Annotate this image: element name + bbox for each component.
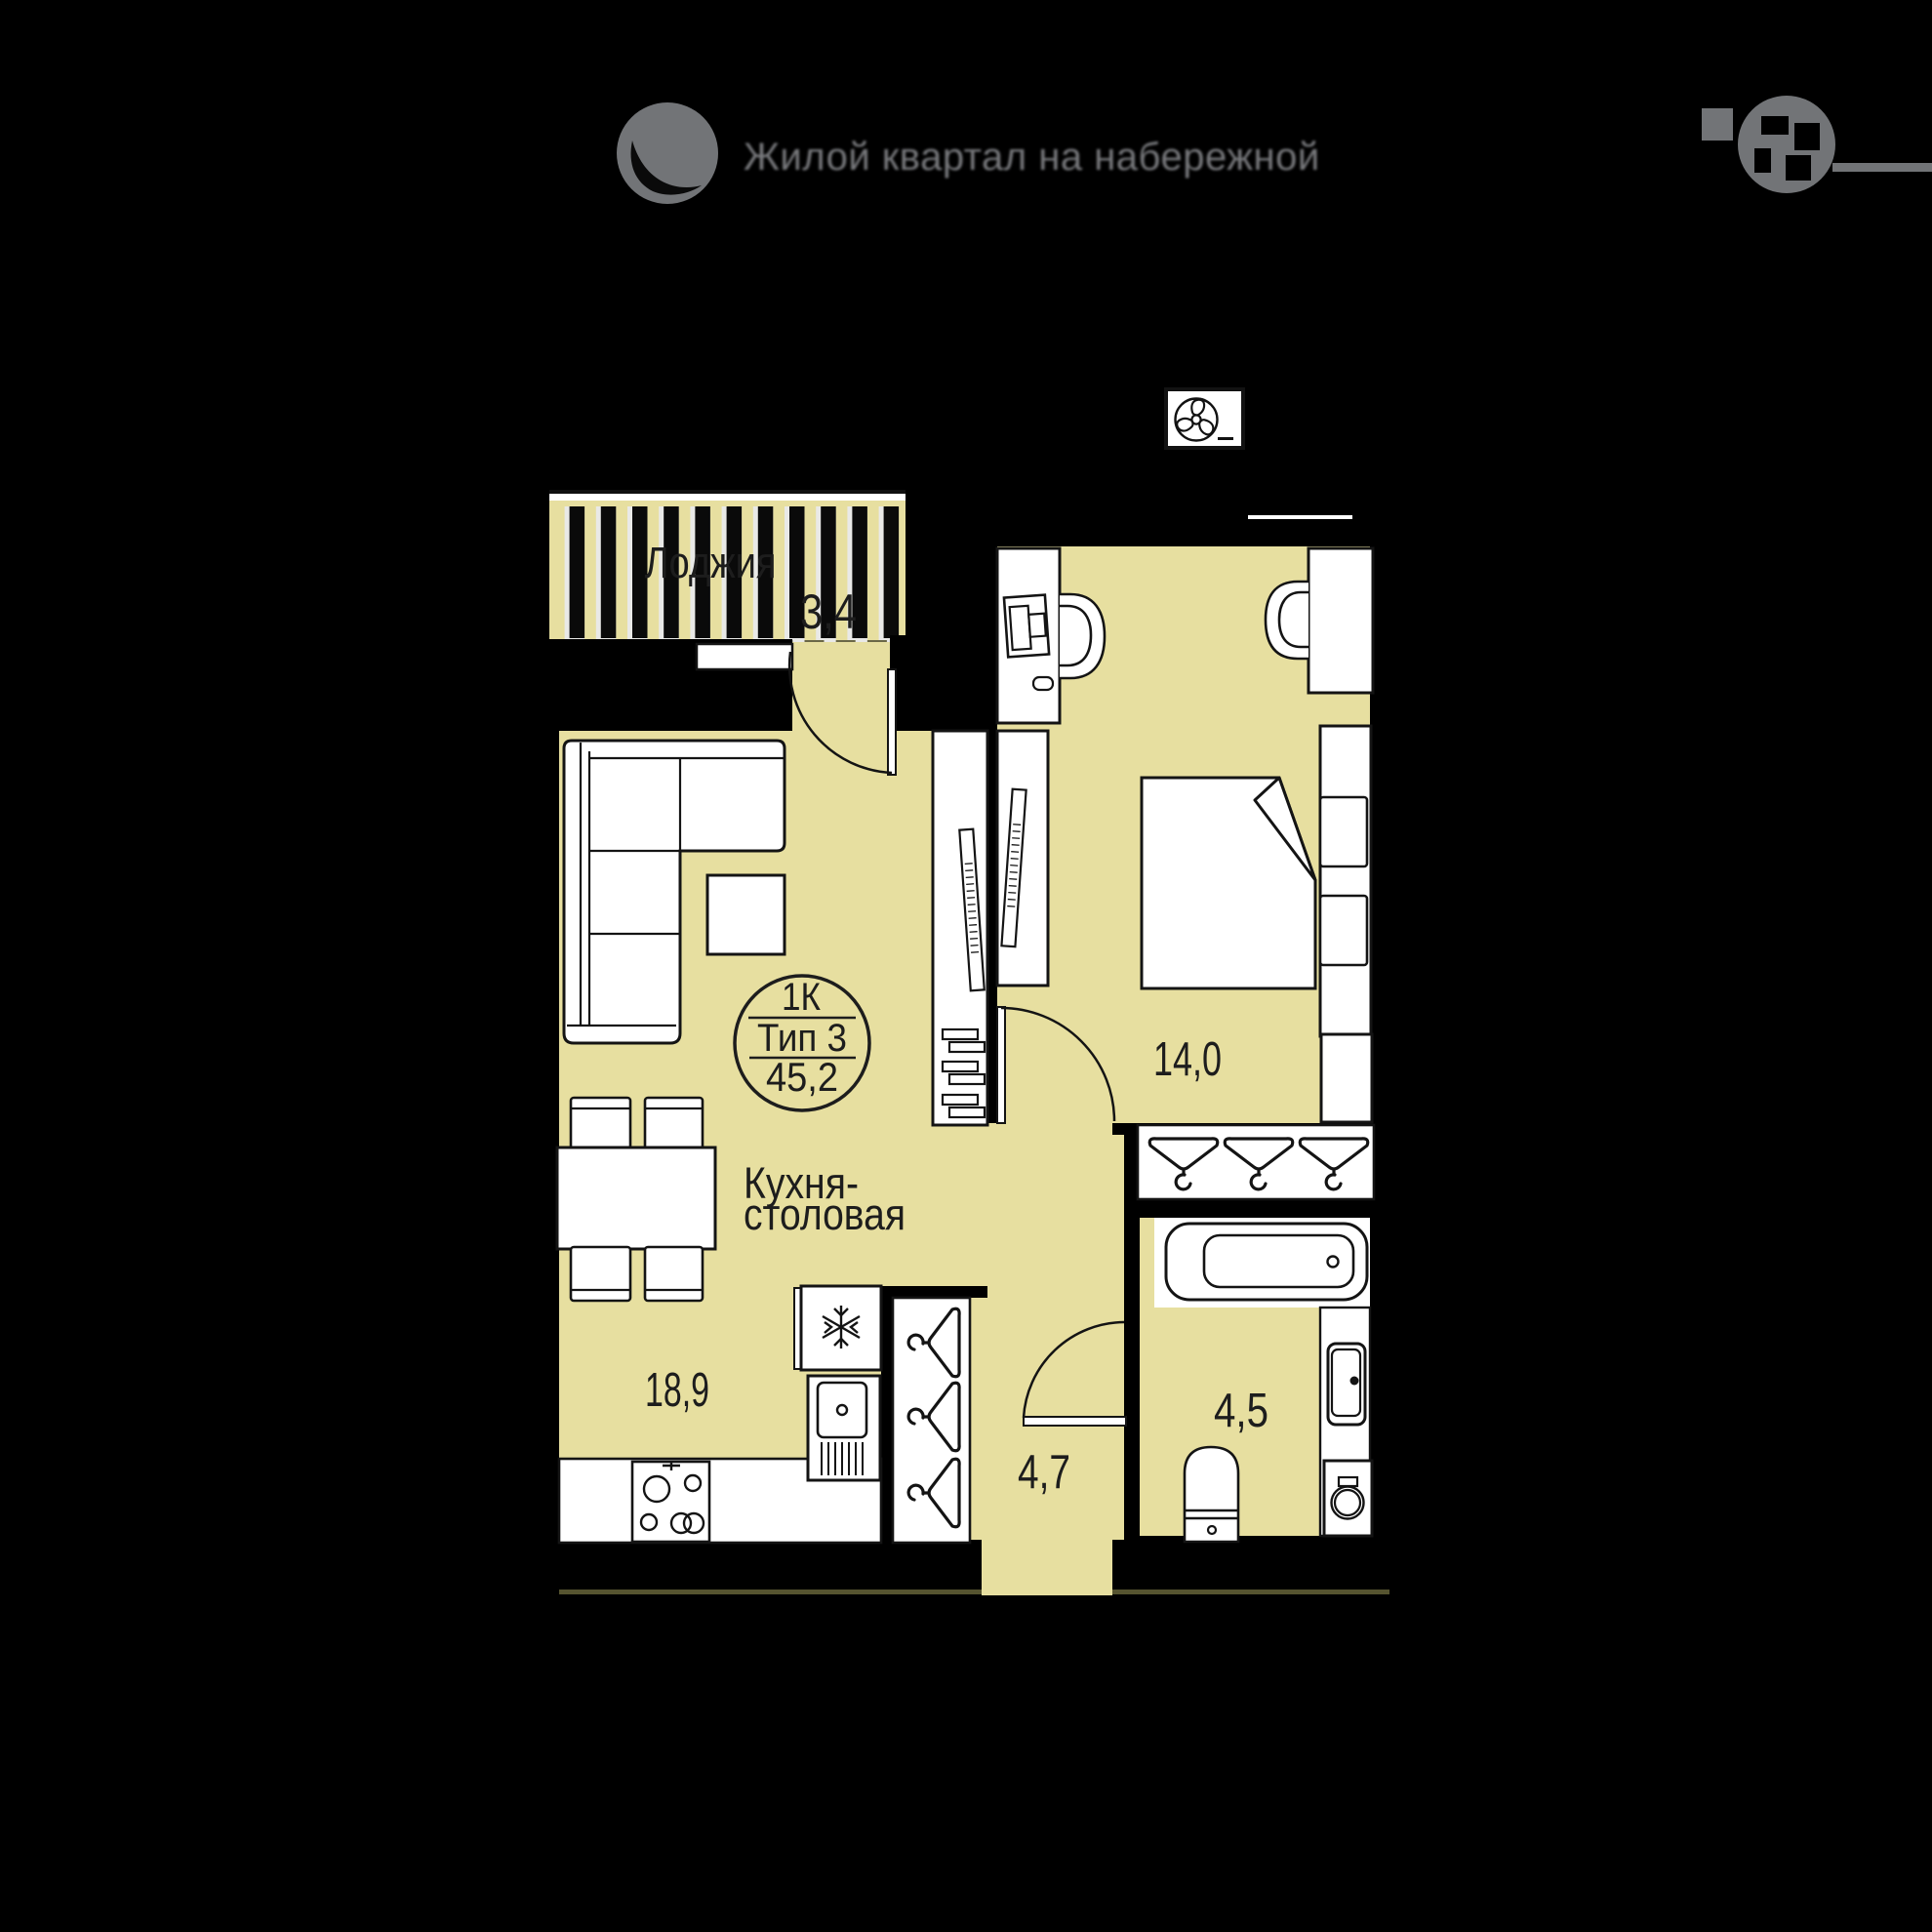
svg-text:4,5: 4,5 bbox=[1214, 1385, 1268, 1437]
svg-text:18,9: 18,9 bbox=[645, 1364, 709, 1417]
svg-text:3,4: 3,4 bbox=[800, 584, 857, 639]
svg-text:1К: 1К bbox=[782, 976, 822, 1019]
svg-text:4,7: 4,7 bbox=[1018, 1446, 1070, 1499]
svg-text:Лоджия: Лоджия bbox=[645, 538, 777, 587]
svg-text:Жилой квартал на набережной: Жилой квартал на набережной bbox=[744, 136, 1320, 179]
svg-text:14,0: 14,0 bbox=[1153, 1033, 1222, 1086]
svg-text:столовая: столовая bbox=[744, 1189, 906, 1239]
svg-text:45,2: 45,2 bbox=[766, 1054, 838, 1100]
